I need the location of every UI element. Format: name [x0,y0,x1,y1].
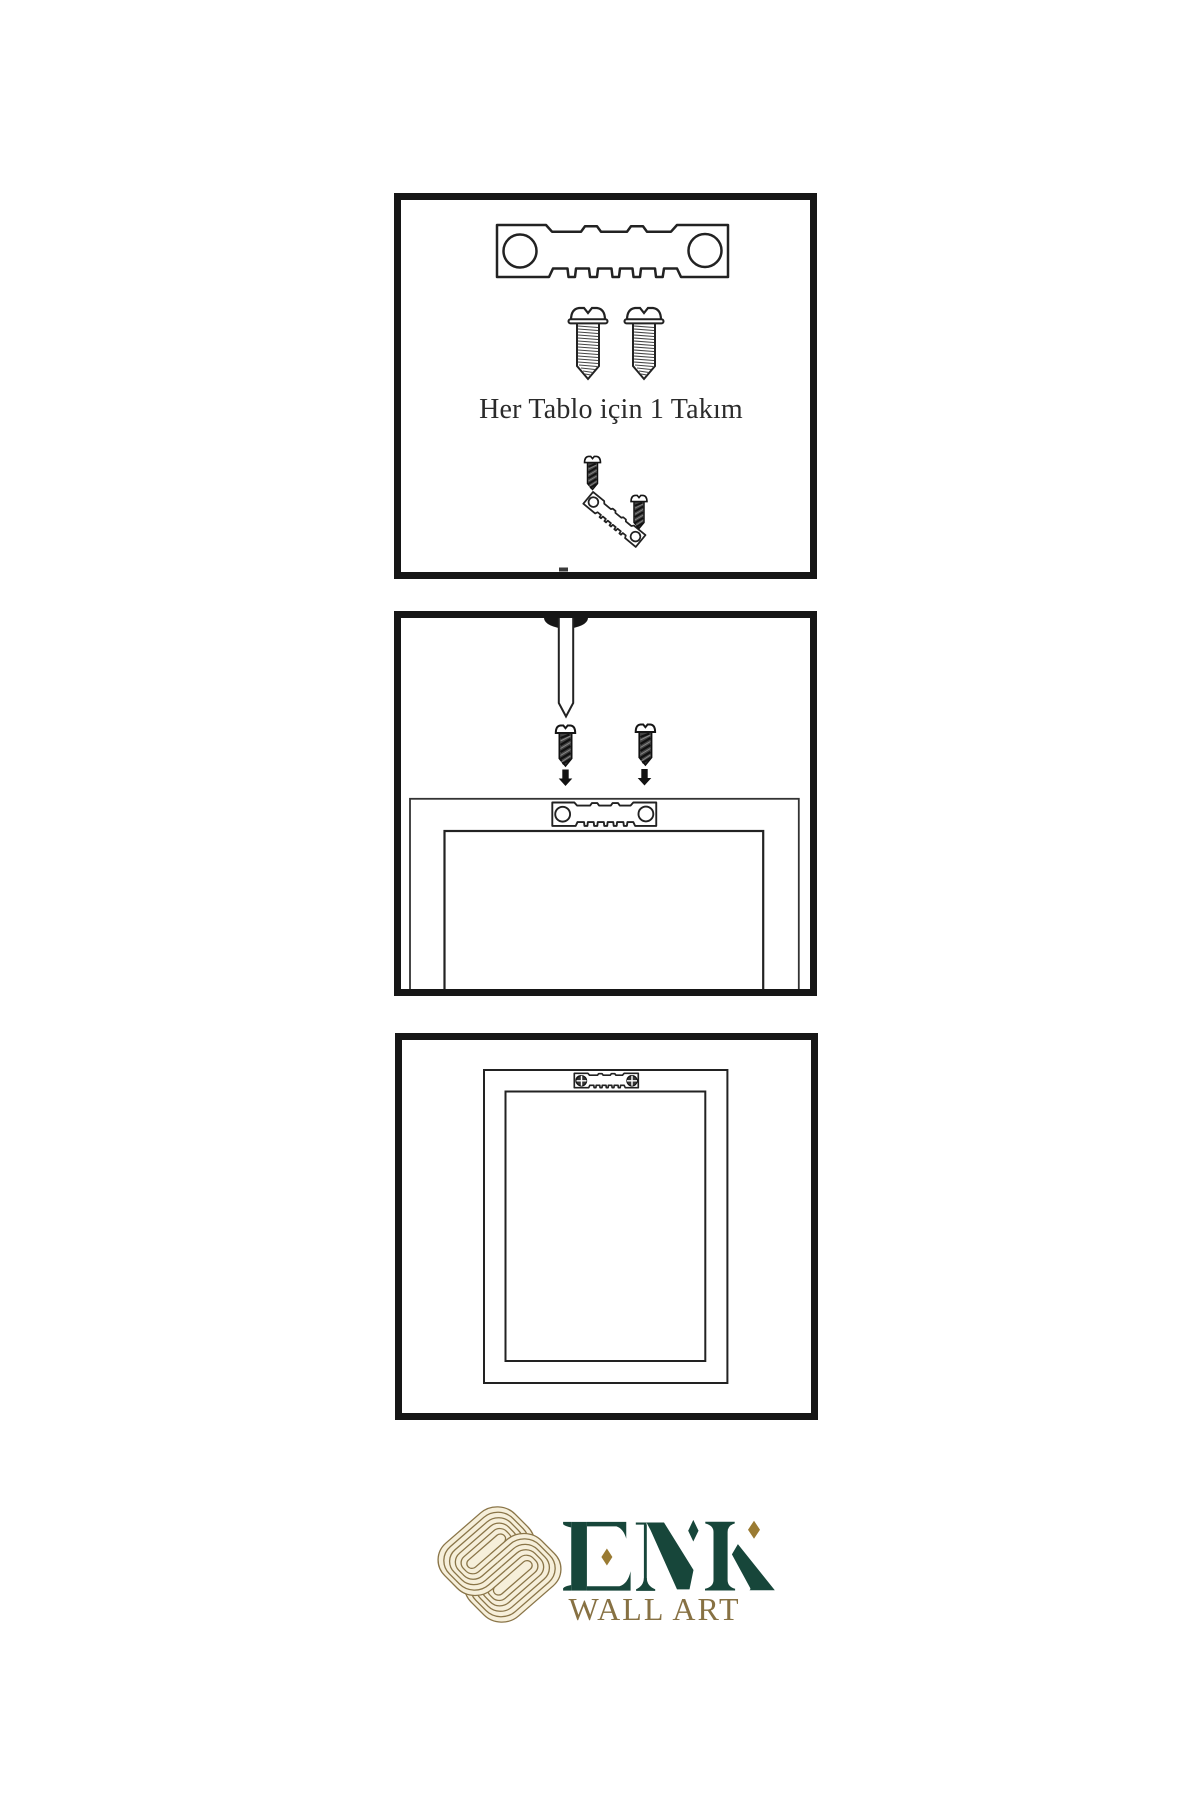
svg-text:WALL ART: WALL ART [569,1591,741,1627]
svg-text:Her Tablo için 1 Takım: Her Tablo için 1 Takım [479,394,743,425]
